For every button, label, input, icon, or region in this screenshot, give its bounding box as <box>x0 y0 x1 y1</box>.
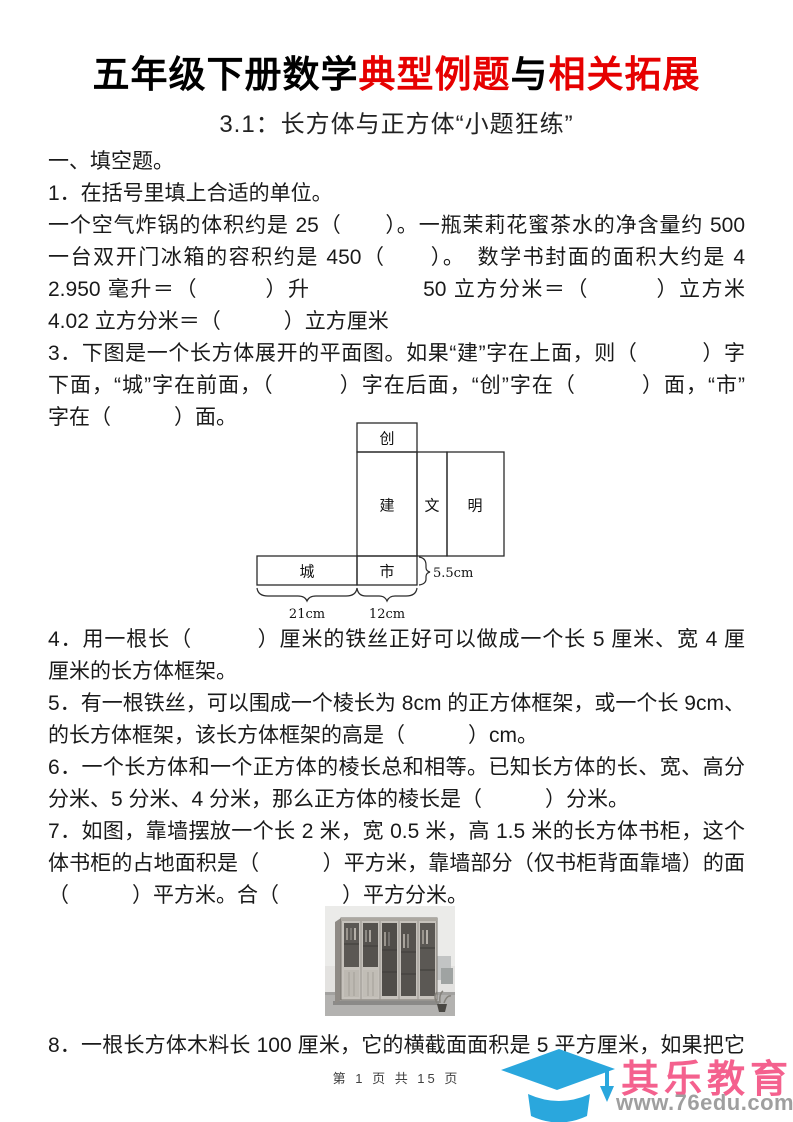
q6-line-2: 分米、5 分米、4 分米，那么正方体的棱长是（ ）分米。 <box>48 784 745 816</box>
dim-width-label: 12cm <box>369 607 405 622</box>
q5-line-1: 5．有一根铁丝，可以围成一个棱长为 8cm 的正方体框架，或一个长 9cm、宽 … <box>48 688 745 720</box>
dim-length-label: 21cm <box>289 607 325 622</box>
q3-line-1: 3．下图是一个长方体展开的平面图。如果“建”字在上面，则（ ）字在 <box>48 338 745 370</box>
section-subtitle: 3.1：长方体与正方体“小题狂练” <box>0 104 793 139</box>
questions-block-2: 4．用一根长（ ）厘米的铁丝正好可以做成一个长 5 厘米、宽 4 厘米、高 6 … <box>48 624 745 912</box>
q3-line-2: 下面，“城”字在前面，（ ）字在后面，“创”字在（ ）面，“市” <box>48 370 745 402</box>
title-part-2: 典型例题 <box>359 54 511 95</box>
net-label-bottom: 市 <box>379 564 394 581</box>
bookcase-photo <box>325 906 455 1016</box>
q2-line-1: 2.950 毫升＝（ ）升 50 立方分米＝（ ）立方米 <box>48 274 745 306</box>
section-heading: 一、填空题。 <box>48 146 745 178</box>
worksheet-page: 五年级下册数学典型例题与相关拓展 3.1：长方体与正方体“小题狂练” 一、填空题… <box>0 0 793 1122</box>
brace-width <box>357 588 417 601</box>
q2-line-2: 4.02 立方分米＝（ ）立方厘米 <box>48 306 745 338</box>
q1-line-1: 一个空气炸锅的体积约是 25（ ）。一瓶茉莉花蜜茶水的净含量约 500（ ）。 <box>48 210 745 242</box>
box-net-diagram: 创 建 文 明 城 市 5.5cm 21cm 12cm <box>228 420 528 625</box>
dim-height-label: 5.5cm <box>433 566 473 581</box>
brace-length <box>257 588 357 601</box>
net-label-front: 建 <box>379 498 394 515</box>
net-label-side: 文 <box>424 498 439 515</box>
net-label-top: 创 <box>379 431 394 448</box>
publisher-logo: 其乐教育 www.76edu.com <box>497 1042 793 1122</box>
net-label-back: 明 <box>467 498 482 515</box>
q1-prompt: 1．在括号里填上合适的单位。 <box>48 178 745 210</box>
q7-line-1: 7．如图，靠墙摆放一个长 2 米，宽 0.5 米，高 1.5 米的长方体书柜，这… <box>48 816 745 848</box>
q4-line-2: 厘米的长方体框架。 <box>48 656 745 688</box>
title-part-4: 相关拓展 <box>549 54 701 95</box>
q6-line-1: 6．一个长方体和一个正方体的棱长总和相等。已知长方体的长、宽、高分别是 6 <box>48 752 745 784</box>
questions-block-1: 一、填空题。 1．在括号里填上合适的单位。 一个空气炸锅的体积约是 25（ ）。… <box>48 146 745 434</box>
net-label-left: 城 <box>299 564 314 581</box>
q1-line-2: 一台双开门冰箱的容积约是 450（ ）。 数学书封面的面积大约是 4（ ）。 <box>48 242 745 274</box>
title-part-1: 五年级下册数学 <box>93 54 359 95</box>
logo-url: www.76edu.com <box>616 1090 793 1116</box>
q7-line-2: 体书柜的占地面积是（ ）平方米，靠墙部分（仅书柜背面靠墙）的面积是 <box>48 848 745 880</box>
brace-height <box>419 557 430 585</box>
page-title: 五年级下册数学典型例题与相关拓展 <box>0 44 793 98</box>
q5-line-2: 的长方体框架，该长方体框架的高是（ ）cm。 <box>48 720 745 752</box>
title-part-3: 与 <box>511 54 549 95</box>
q4-line-1: 4．用一根长（ ）厘米的铁丝正好可以做成一个长 5 厘米、宽 4 厘米、高 6 <box>48 624 745 656</box>
graduation-cap-icon <box>497 1044 619 1122</box>
